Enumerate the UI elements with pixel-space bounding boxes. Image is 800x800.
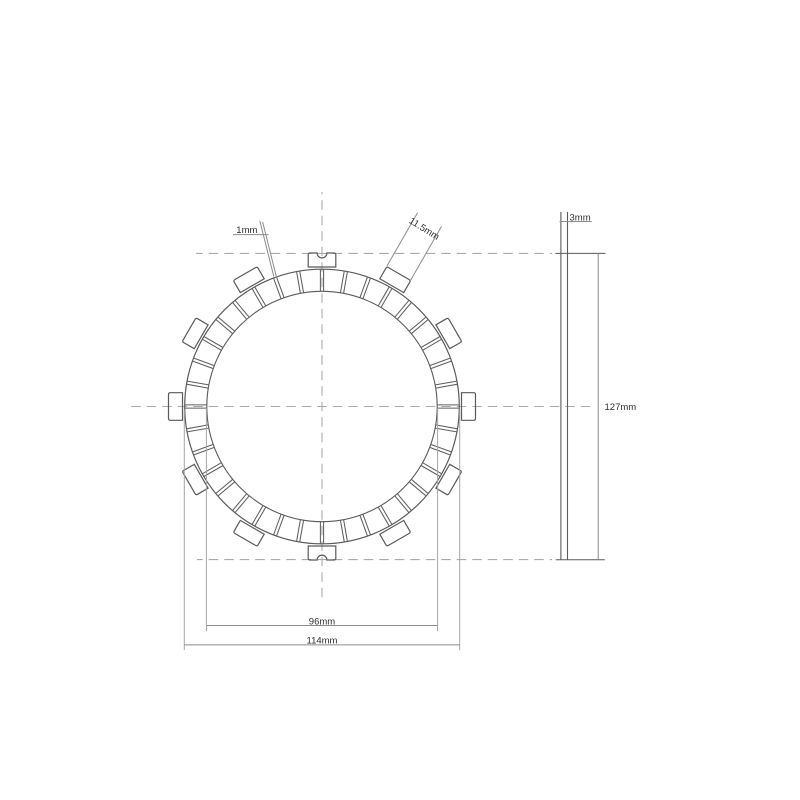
svg-text:96mm: 96mm [309,616,335,627]
svg-text:127mm: 127mm [605,402,637,413]
svg-text:114mm: 114mm [307,636,338,647]
svg-text:3mm: 3mm [570,212,591,223]
svg-text:1mm: 1mm [236,225,257,236]
